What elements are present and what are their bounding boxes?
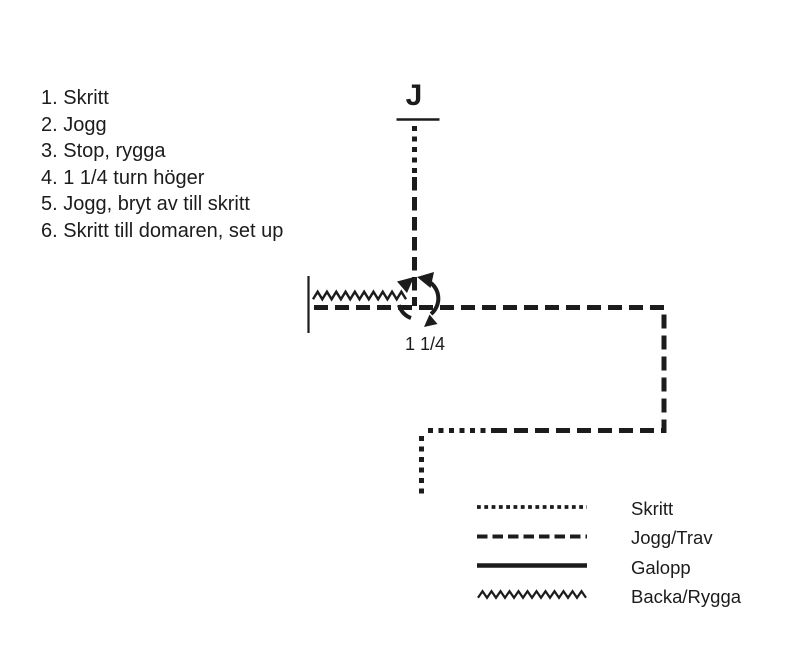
legend: Skritt Jogg/Trav Galopp Backa/Rygga [631,494,741,612]
instruction-item: 6. Skritt till domaren, set up [41,218,283,245]
pattern-page: 1. Skritt 2. Jogg 3. Stop, rygga 4. 1 1/… [0,0,800,665]
instruction-item: 5. Jogg, bryt av till skritt [41,191,283,218]
back-up-zigzag-line [313,292,406,300]
legend-label-jog: Jogg/Trav [631,523,741,552]
legend-label-walk: Skritt [631,494,741,523]
legend-samples [477,507,587,598]
legend-label-back: Backa/Rygga [631,582,741,611]
instruction-item: 2. Jogg [41,112,283,139]
instruction-item: 3. Stop, rygga [41,138,283,165]
turn-symbol [397,272,438,327]
instruction-item: 1. Skritt [41,85,283,112]
jog-line-main [314,308,664,431]
turn-arrow-upper-left-icon [397,277,414,293]
instruction-list: 1. Skritt 2. Jogg 3. Stop, rygga 4. 1 1/… [41,85,283,244]
instruction-item: 4. 1 1/4 turn höger [41,165,283,192]
turn-amount-label: 1 1/4 [385,334,465,354]
legend-label-lope: Galopp [631,553,741,582]
judge-label: J [391,80,437,112]
legend-back-line-sample [478,591,586,598]
turn-arrow-bottom-icon [424,315,438,328]
